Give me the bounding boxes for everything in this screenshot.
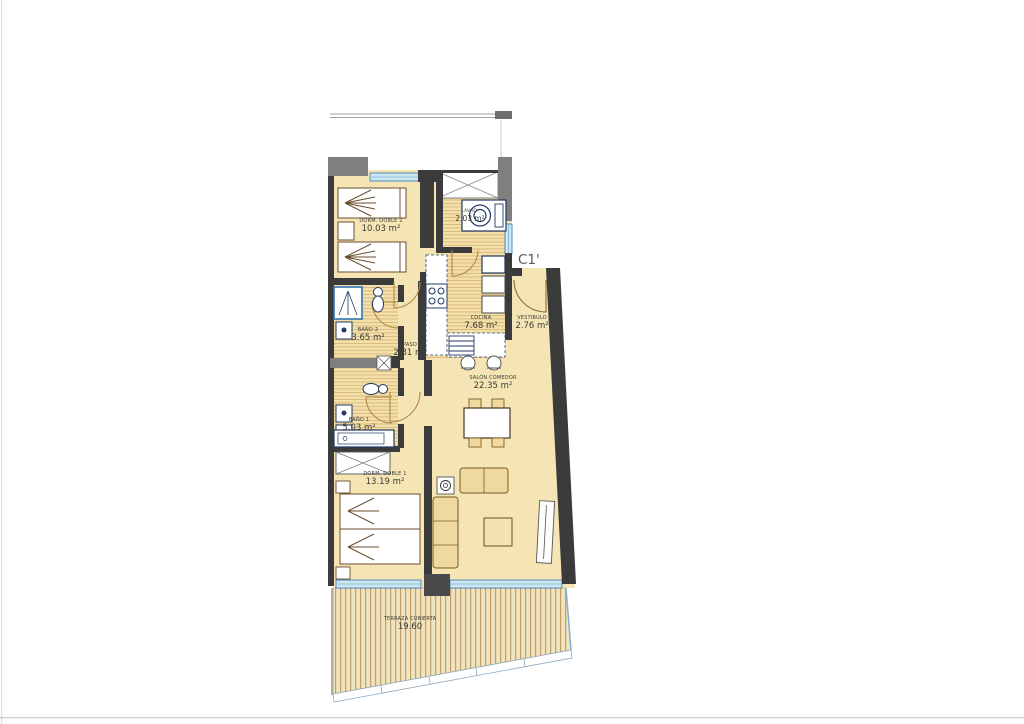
chair-icon [492,399,504,408]
single-bed-icon [338,188,406,218]
window-dorm1 [336,580,421,588]
hob-icon [426,284,447,308]
washing-machine-icon [462,200,506,231]
bar-stool-icon [487,356,501,370]
shaft-icon [438,172,498,198]
bathtub-icon [334,430,394,447]
shower-icon [334,287,362,319]
window-dorm2 [370,173,419,181]
single-bed-icon [338,242,406,272]
nightstand-icon [336,567,350,579]
wall-bath-divider [330,358,377,368]
facade-reference-line [330,111,512,157]
side-table-icon [437,477,454,494]
tv-cabinet-icon [536,501,554,564]
fridge-icon [482,256,505,313]
wall-window-pillar [424,574,450,596]
chair-icon [469,399,481,408]
double-bed-icon [340,494,420,564]
toilet-icon [363,384,388,395]
window-salon-sliding-door [450,580,562,588]
wall-left [328,176,334,586]
loveseat-icon [460,468,508,493]
floor-plan-page: DORM. DOBLE 2 10.03 m² LAVAD. 2.03 m² BA… [0,0,1024,724]
dining-table-icon [464,408,510,438]
sink-icon [336,322,352,339]
bar-stool-icon [461,356,475,370]
pillar-top-left [328,157,368,176]
floor-plan-svg [0,0,1024,724]
chair-icon [492,438,504,447]
nightstand-icon [336,481,350,493]
toilet-icon [373,288,384,313]
sofa-icon [433,497,458,568]
duct-shaft-icon [377,356,391,370]
chair-icon [469,438,481,447]
nightstand-icon [338,222,354,240]
wardrobe-icon [336,452,390,474]
dishwasher-icon [449,336,474,355]
unit-label: C1' [518,252,540,268]
coffee-table-icon [484,518,512,546]
